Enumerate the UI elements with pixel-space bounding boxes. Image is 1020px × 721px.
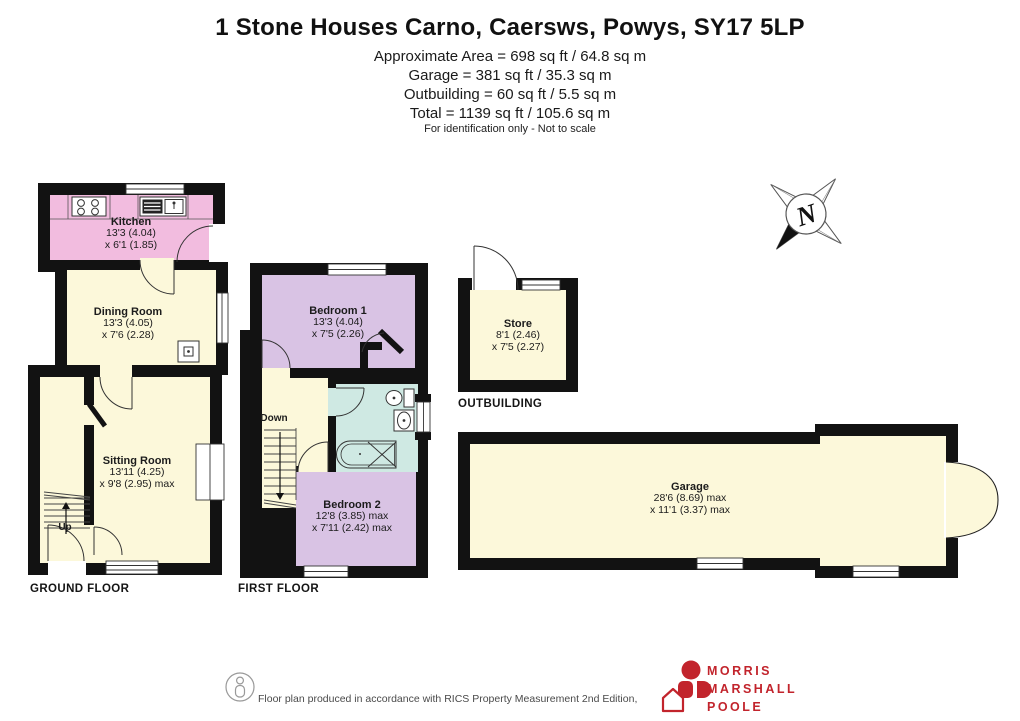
kitchen-label: Kitchen 13'3 (4.04) x 6'1 (1.85): [105, 216, 157, 251]
dining-room-label: Dining Room 13'3 (4.05) x 7'6 (2.28): [94, 306, 162, 341]
sitting-room-label: Sitting Room 13'11 (4.25) x 9'8 (2.95) m…: [100, 455, 175, 490]
surveyor-person-icon: [226, 673, 254, 701]
store-label: Store 8'1 (2.46) x 7'5 (2.27): [492, 318, 544, 353]
footer-disclaimer: Floor plan produced in accordance with R…: [258, 663, 678, 721]
bedroom1-label: Bedroom 1 13'3 (4.04) x 7'5 (2.26): [309, 305, 366, 340]
window: [522, 280, 560, 290]
area-grand-total-line: Total = 1139 sq ft / 105.6 sq m: [0, 105, 1020, 122]
page-title: 1 Stone Houses Carno, Caersws, Powys, SY…: [0, 14, 1020, 42]
room-garage: [470, 444, 822, 558]
area-outbuilding-line: Outbuilding = 60 sq ft / 5.5 sq m: [0, 86, 1020, 103]
sink-icon: [140, 197, 186, 216]
outbuilding-label: OUTBUILDING: [458, 398, 542, 410]
area-total-line: Approximate Area = 698 sq ft / 64.8 sq m: [0, 48, 1020, 65]
garage-label: Garage 28'6 (8.69) max x 11'1 (3.37) max: [650, 481, 730, 516]
first-floor-label: FIRST FLOOR: [238, 583, 319, 595]
logo-line-marshall: MARSHALL: [707, 680, 797, 698]
logo-line-poole: POOLE: [707, 698, 797, 716]
stairs-down-label: Down: [252, 413, 296, 424]
boiler-icon: [178, 341, 199, 362]
mmp-logo-text: MORRIS MARSHALL POOLE: [707, 662, 797, 716]
window: [417, 402, 430, 432]
steps: [106, 561, 158, 574]
logo-line-morris: MORRIS: [707, 662, 797, 680]
double-door-swing: [946, 462, 998, 538]
scale-disclaimer: For identification only - Not to scale: [0, 123, 1020, 135]
floorplan-page: N 1 Stone Houses Carno, Caersws, Powys, …: [0, 0, 1020, 721]
stairs-up-label: Up: [50, 522, 80, 533]
footer-line-1: Floor plan produced in accordance with R…: [258, 692, 678, 707]
hob-icon: [72, 197, 106, 216]
compass-north-icon: N: [741, 149, 871, 279]
bedroom2-label: Bedroom 2 12'8 (3.85) max x 7'11 (2.42) …: [312, 499, 392, 534]
bath-icon: [337, 441, 397, 468]
basin-icon: [394, 410, 414, 431]
area-garage-line: Garage = 381 sq ft / 35.3 sq m: [0, 67, 1020, 84]
ground-floor-label: GROUND FLOOR: [30, 583, 129, 595]
